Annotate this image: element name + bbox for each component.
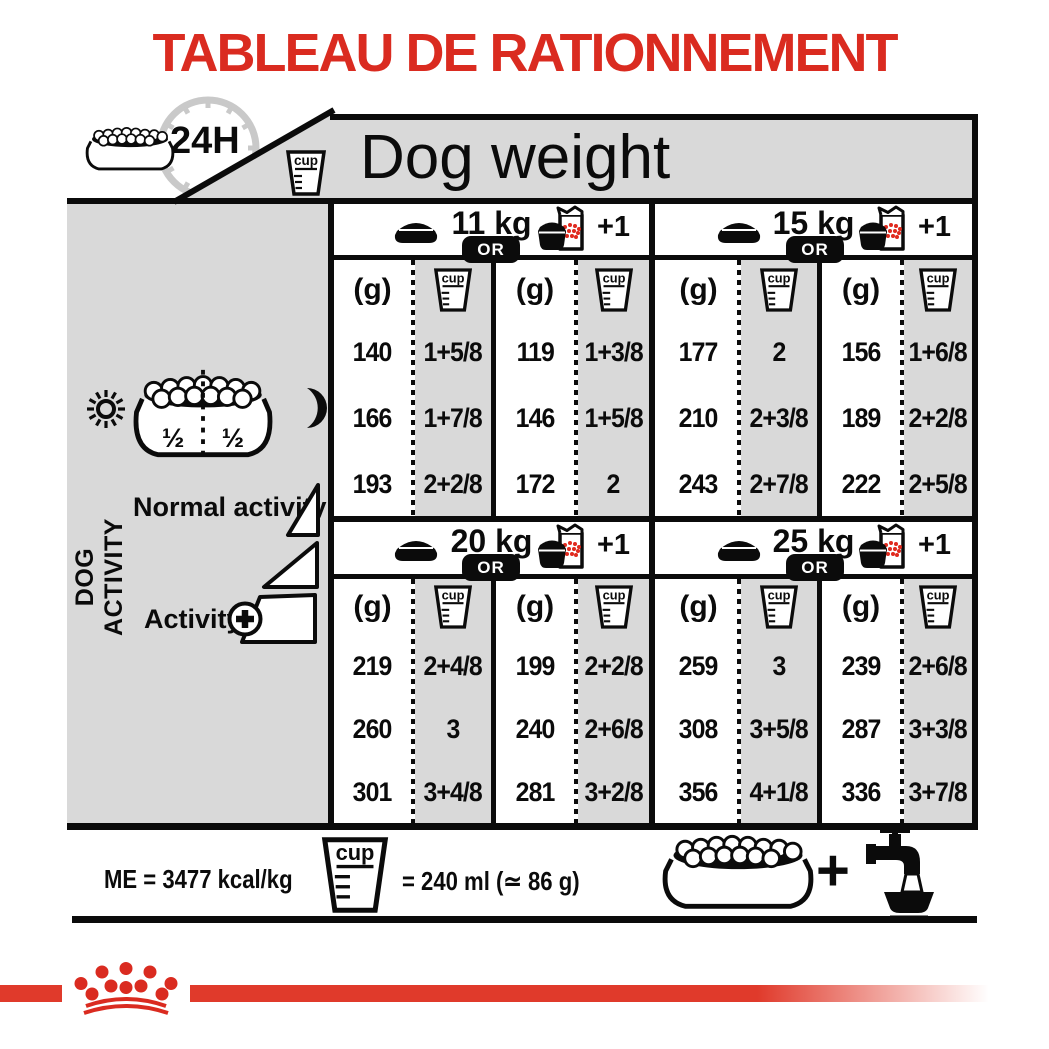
- cup-icon-label: cup: [336, 840, 375, 865]
- grid-line-middle-vertical: [649, 203, 655, 830]
- ration-cups-value: 3+7/8: [909, 777, 967, 808]
- ration-cups-value: 2+5/8: [909, 469, 967, 500]
- ration-grams-value: 219: [353, 651, 392, 682]
- cup-icon-label: cup: [602, 587, 625, 602]
- bowl-kibble-icon: [84, 122, 176, 178]
- cup-icon-label: cup: [927, 587, 950, 602]
- ration-cups-value: 2+3/8: [750, 403, 808, 434]
- ration-grams-value: 243: [679, 469, 718, 500]
- cup-icon-label: cup: [768, 587, 791, 602]
- or-badge: OR: [786, 554, 844, 581]
- plus-circle-icon: [226, 600, 264, 638]
- grams-header: (g): [679, 590, 717, 624]
- grams-header: (g): [842, 273, 880, 307]
- measuring-cup-icon: cup: [316, 833, 394, 917]
- cup-column: cup 3 3+5/8 4+1/8: [741, 579, 817, 824]
- ration-cups-value: 1+5/8: [584, 403, 642, 434]
- royal-canin-crown-icon: [72, 955, 184, 1021]
- grams-header: (g): [842, 590, 880, 624]
- measuring-cup-icon: cup: [433, 583, 473, 631]
- bowl-plus-bag-icon: [855, 205, 913, 253]
- cup-column: cup 2+2/8 2+6/8 3+2/8: [578, 579, 649, 824]
- cup-icon-label: cup: [927, 270, 950, 285]
- grams-column: (g) 177 210 243: [660, 260, 737, 517]
- ration-cups-value: 2+2/8: [424, 469, 482, 500]
- ration-cups-value: 2+2/8: [909, 403, 967, 434]
- cup-icon-label: cup: [294, 153, 318, 168]
- measuring-cup-icon: cup: [759, 583, 799, 631]
- cup-icon-label: cup: [602, 270, 625, 285]
- rationing-table-page: TABLEAU DE RATIONNEMENT Dog weight 24H: [0, 0, 1049, 1049]
- ration-grams-value: 119: [516, 337, 553, 368]
- half-bowl-icon: ½ ½: [126, 366, 280, 472]
- plus-one-label: +1: [918, 211, 951, 244]
- ration-grams-value: 140: [353, 337, 392, 368]
- page-title: TABLEAU DE RATIONNEMENT: [0, 22, 1049, 84]
- or-badge: OR: [786, 236, 844, 263]
- plus-one-label: +1: [597, 211, 630, 244]
- grams-header: (g): [516, 273, 554, 307]
- ration-grams-value: 172: [516, 469, 555, 500]
- ration-grams-value: 281: [516, 777, 555, 808]
- ration-cups-value: 1+5/8: [424, 337, 482, 368]
- ration-grams-value: 260: [353, 714, 392, 745]
- bowl-plus-bag-icon: [534, 205, 592, 253]
- bowl-kibble-icon: [656, 830, 820, 918]
- grid-line-bottom: [67, 823, 978, 830]
- ration-grams-value: 156: [842, 337, 881, 368]
- dog-weight-title: Dog weight: [360, 122, 670, 193]
- bowl-plus-bag-icon: [855, 523, 913, 571]
- activity-ramp-medium-icon: [262, 540, 320, 590]
- activity-ramp-small-icon: [286, 482, 320, 538]
- grams-header: (g): [679, 273, 717, 307]
- ration-grams-value: 177: [679, 337, 718, 368]
- cup-column: cup 2+4/8 3 3+4/8: [415, 579, 491, 824]
- cup-icon-label: cup: [442, 587, 465, 602]
- measuring-cup-icon: cup: [918, 266, 958, 314]
- grams-column: (g) 259 308 356: [660, 579, 737, 824]
- dog-activity-label: DOG ACTIVITY: [71, 487, 129, 667]
- brand-band-left: [0, 985, 62, 1002]
- ration-cups-value: 1+3/8: [584, 337, 642, 368]
- ration-cups-value: 3+5/8: [750, 714, 808, 745]
- measuring-cup-icon: cup: [918, 583, 958, 631]
- column-divider: [817, 579, 822, 824]
- cup-equivalence-label: = 240 ml (≃ 86 g): [402, 866, 580, 897]
- ration-cups-value: 4+1/8: [750, 777, 808, 808]
- cup-column: cup 2 2+3/8 2+7/8: [741, 260, 817, 517]
- grams-column: (g) 140 166 193: [334, 260, 411, 517]
- metabolizable-energy-label: ME = 3477 kcal/kg: [104, 864, 293, 895]
- ration-cups-value: 1+6/8: [909, 337, 967, 368]
- moon-icon: [282, 386, 318, 430]
- ration-cups-value: 3+4/8: [424, 777, 482, 808]
- ration-cups-value: 2+7/8: [750, 469, 808, 500]
- measuring-cup-icon: cup: [285, 148, 327, 198]
- ration-grams-value: 166: [353, 403, 392, 434]
- ration-cups-value: 2: [607, 469, 620, 500]
- ration-grams-value: 259: [679, 651, 718, 682]
- sun-icon: [83, 386, 129, 432]
- ration-grams-value: 336: [842, 777, 881, 808]
- cup-column: cup 1+6/8 2+2/8 2+5/8: [904, 260, 972, 517]
- cup-column: cup 2+6/8 3+3/8 3+7/8: [904, 579, 972, 824]
- ration-grams-value: 308: [679, 714, 718, 745]
- ration-grams-value: 199: [516, 651, 555, 682]
- grams-header: (g): [353, 590, 391, 624]
- ration-grams-value: 356: [679, 777, 718, 808]
- clock-24h-label: 24H: [170, 120, 240, 163]
- ration-cups-value: 3: [447, 714, 460, 745]
- cup-icon-label: cup: [442, 270, 465, 285]
- ration-grams-value: 287: [842, 714, 881, 745]
- ration-cups-value: 3: [773, 651, 786, 682]
- column-divider: [491, 579, 496, 824]
- ration-grams-value: 222: [842, 469, 881, 500]
- half-left-label: ½: [162, 423, 185, 453]
- grams-header: (g): [516, 590, 554, 624]
- ration-cups-value: 2+6/8: [909, 651, 967, 682]
- ration-grams-value: 193: [353, 469, 392, 500]
- ration-cups-value: 3+3/8: [909, 714, 967, 745]
- ration-cups-value: 2+4/8: [424, 651, 482, 682]
- measuring-cup-icon: cup: [433, 266, 473, 314]
- ration-cups-value: 2+6/8: [584, 714, 642, 745]
- brand-band-right: [190, 985, 1049, 1002]
- ration-grams-value: 240: [516, 714, 555, 745]
- grid-line-left: [328, 198, 334, 830]
- grams-column: (g) 199 240 281: [496, 579, 574, 824]
- ration-grams-value: 146: [516, 403, 555, 434]
- grid-line-top: [67, 198, 978, 204]
- ration-grams-value: 239: [842, 651, 881, 682]
- measuring-cup-icon: cup: [759, 266, 799, 314]
- ration-cups-value: 1+7/8: [424, 403, 482, 434]
- ration-grams-value: 210: [679, 403, 718, 434]
- measuring-cup-icon: cup: [594, 266, 634, 314]
- or-badge: OR: [462, 554, 520, 581]
- ration-grams-value: 189: [842, 403, 881, 434]
- ration-grams-value: 301: [353, 777, 392, 808]
- column-divider: [817, 260, 822, 517]
- grams-column: (g) 219 260 301: [334, 579, 411, 824]
- ration-cups-value: 3+2/8: [584, 777, 642, 808]
- cup-column: cup 1+3/8 1+5/8 2: [578, 260, 649, 517]
- tap-water-icon: [854, 822, 936, 918]
- grams-column: (g) 239 287 336: [822, 579, 900, 824]
- cup-icon-label: cup: [768, 270, 791, 285]
- ration-cups-value: 2: [773, 337, 786, 368]
- grams-header: (g): [353, 273, 391, 307]
- column-divider: [491, 260, 496, 517]
- plus-one-label: +1: [918, 529, 951, 562]
- plus-sign: +: [816, 842, 850, 900]
- grid-line-right: [972, 114, 978, 830]
- footer-divider-line: [72, 916, 977, 923]
- bowl-plus-bag-icon: [534, 523, 592, 571]
- plus-one-label: +1: [597, 529, 630, 562]
- grams-column: (g) 156 189 222: [822, 260, 900, 517]
- grams-column: (g) 119 146 172: [496, 260, 574, 517]
- ration-cups-value: 2+2/8: [584, 651, 642, 682]
- half-right-label: ½: [222, 423, 245, 453]
- cup-column: cup 1+5/8 1+7/8 2+2/8: [415, 260, 491, 517]
- or-badge: OR: [462, 236, 520, 263]
- measuring-cup-icon: cup: [594, 583, 634, 631]
